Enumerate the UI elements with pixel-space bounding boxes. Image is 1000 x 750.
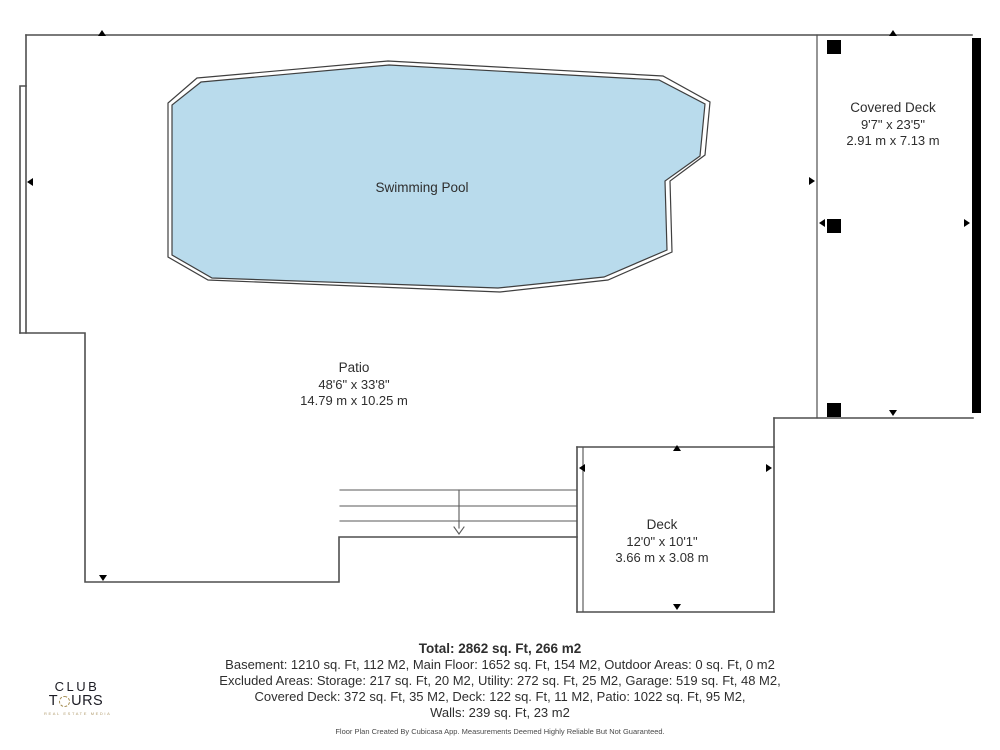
- patio-measure-left-icon: [27, 178, 33, 186]
- covered-deck-measure-left-icon: [819, 219, 825, 227]
- post-icon: [827, 219, 841, 233]
- swimming-pool-label-block: Swimming Pool: [375, 179, 468, 197]
- disclaimer-note: Floor Plan Created By Cubicasa App. Meas…: [335, 727, 664, 736]
- covered-deck-posts: [827, 40, 841, 417]
- summary-line: Excluded Areas: Storage: 217 sq. Ft, 20 …: [219, 673, 780, 689]
- patio-measure-down-icon: [99, 575, 107, 581]
- covered-deck-label-block: Covered Deck 9'7" x 23'5" 2.91 m x 7.13 …: [846, 99, 939, 149]
- stairs: [340, 490, 577, 534]
- logo-line2-t: T: [49, 694, 58, 709]
- covered-deck-measure-right-icon: [964, 219, 970, 227]
- covered-deck-label: Covered Deck: [846, 99, 939, 117]
- exterior-wall: [972, 38, 981, 413]
- area-summary: Total: 2862 sq. Ft, 266 m2 Basement: 121…: [219, 640, 780, 721]
- patio-label-block: Patio 48'6" x 33'8" 14.79 m x 10.25 m: [300, 359, 408, 409]
- patio-left-thin-wall: [20, 86, 26, 333]
- swimming-pool-label: Swimming Pool: [375, 179, 468, 197]
- deck-measure-down-icon: [673, 604, 681, 610]
- club-tours-logo: CLUB T URS REAL ESTATE MEDIA: [44, 680, 108, 716]
- summary-line: Walls: 239 sq. Ft, 23 m2: [219, 705, 780, 721]
- logo-line2: T URS: [44, 694, 108, 709]
- deck-measure-right-icon: [766, 464, 772, 472]
- deck-dimensions-metric: 3.66 m x 3.08 m: [615, 550, 708, 566]
- post-icon: [827, 40, 841, 54]
- post-icon: [827, 403, 841, 417]
- covered-deck-measure-up-icon: [889, 30, 897, 36]
- covered-deck-dimensions-imperial: 9'7" x 23'5": [846, 117, 939, 133]
- floor-plan-canvas: Swimming Pool Covered Deck 9'7" x 23'5" …: [0, 0, 1000, 750]
- deck-measure-up-icon: [673, 445, 681, 451]
- deck-label: Deck: [615, 516, 708, 534]
- deck-measure-left-icon: [579, 464, 585, 472]
- logo-compass-o-icon: [59, 696, 70, 707]
- logo-tagline: REAL ESTATE MEDIA: [44, 711, 108, 716]
- pool-water: [172, 65, 705, 288]
- patio-dimensions-imperial: 48'6" x 33'8": [300, 377, 408, 393]
- covered-deck-dimensions-metric: 2.91 m x 7.13 m: [846, 133, 939, 149]
- covered-deck-measure-down-icon: [889, 410, 897, 416]
- summary-line: Basement: 1210 sq. Ft, 112 M2, Main Floo…: [219, 657, 780, 673]
- logo-line1: CLUB: [46, 680, 108, 694]
- patio-measure-up-icon: [98, 30, 106, 36]
- patio-label: Patio: [300, 359, 408, 377]
- deck-label-block: Deck 12'0" x 10'1" 3.66 m x 3.08 m: [615, 516, 708, 566]
- patio-bottom-edge: [20, 333, 577, 582]
- summary-total: Total: 2862 sq. Ft, 266 m2: [219, 640, 780, 657]
- logo-line2-urs: URS: [71, 694, 103, 709]
- patio-dimensions-metric: 14.79 m x 10.25 m: [300, 393, 408, 409]
- deck-dimensions-imperial: 12'0" x 10'1": [615, 534, 708, 550]
- deck-outline: [577, 418, 774, 612]
- summary-line: Covered Deck: 372 sq. Ft, 35 M2, Deck: 1…: [219, 689, 780, 705]
- patio-measure-right-icon: [809, 177, 815, 185]
- swimming-pool-shape: [168, 61, 710, 292]
